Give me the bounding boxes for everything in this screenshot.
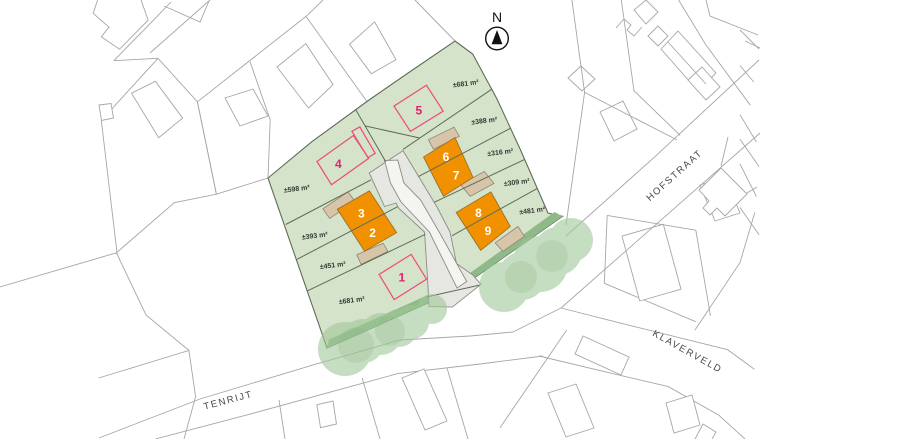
svg-text:5: 5: [416, 103, 423, 117]
svg-text:1: 1: [398, 271, 405, 285]
svg-text:2: 2: [369, 226, 376, 240]
svg-text:9: 9: [485, 224, 492, 238]
svg-text:4: 4: [335, 157, 342, 171]
svg-text:N: N: [492, 9, 502, 25]
svg-text:3: 3: [358, 206, 365, 220]
svg-text:7: 7: [453, 169, 460, 183]
svg-text:6: 6: [443, 150, 450, 164]
svg-text:8: 8: [475, 206, 482, 220]
